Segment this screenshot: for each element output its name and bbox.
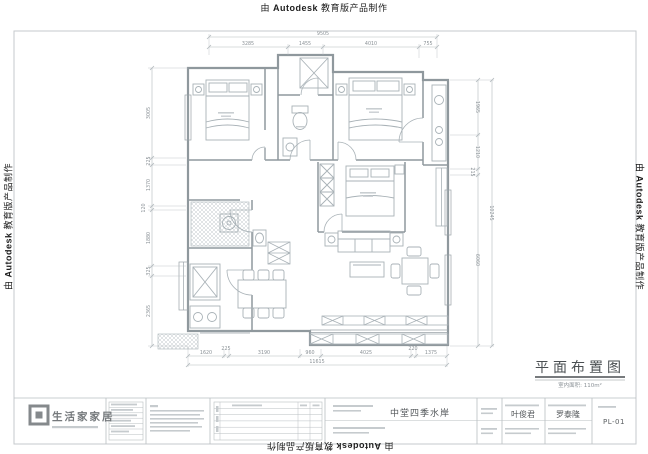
drawing-sheet: 由 Autodesk 教育版产品制作 由 Autodesk 教育版产品制作 由 … — [0, 0, 648, 454]
svg-text:2365: 2365 — [146, 305, 152, 317]
title-block-text: 中堂四季水岸 叶俊君 罗泰隆 PL-01 — [390, 407, 625, 426]
svg-text:3285: 3285 — [242, 41, 254, 47]
watermark-top: 由 Autodesk 教育版产品制作 — [249, 1, 399, 14]
svg-text:4010: 4010 — [365, 41, 377, 47]
plan-title-block: 平面布置图 室内面积: 110m² — [535, 360, 625, 389]
designer-name: 叶俊君 — [511, 409, 535, 419]
svg-text:215: 215 — [469, 167, 475, 176]
plan-inner-walls — [188, 68, 448, 331]
svg-text:1880: 1880 — [146, 232, 152, 244]
svg-text:1210: 1210 — [474, 146, 480, 158]
company-logo: 生活家家居 — [30, 406, 115, 424]
svg-text:1375: 1375 — [425, 350, 437, 356]
svg-text:120: 120 — [141, 203, 147, 212]
plan-subtitle: 室内面积: 110m² — [558, 381, 602, 389]
floor-plan-drawing: 9505 3285 1455 4010 755 1620 225 3190 96… — [0, 0, 648, 454]
watermark-prefix: 由 — [260, 3, 270, 13]
svg-text:1620: 1620 — [200, 350, 212, 356]
svg-text:3005: 3005 — [146, 107, 152, 119]
svg-text:225: 225 — [221, 346, 230, 352]
watermark-suffix: 教育版产品制作 — [321, 3, 388, 13]
plan-room-labels — [218, 108, 382, 197]
svg-text:325: 325 — [146, 266, 152, 275]
svg-text:220: 220 — [408, 346, 417, 352]
watermark-bottom: 由 Autodesk 教育版产品制作 — [255, 440, 405, 453]
project-name: 中堂四季水岸 — [390, 407, 450, 418]
svg-text:4025: 4025 — [360, 350, 372, 356]
svg-text:6060: 6060 — [474, 254, 480, 266]
svg-text:960: 960 — [305, 350, 314, 356]
watermark-right: 由 Autodesk 教育版产品制作 — [634, 152, 647, 302]
watermark-left: 由 Autodesk 教育版产品制作 — [2, 152, 15, 302]
dim-bottom-total: 11615 — [309, 359, 324, 365]
svg-text:3190: 3190 — [258, 350, 270, 356]
watermark-brand: Autodesk — [273, 3, 318, 13]
company-name: 生活家家居 — [52, 410, 115, 423]
plan-title: 平面布置图 — [535, 360, 625, 376]
sheet-number: PL-01 — [603, 418, 625, 426]
svg-text:1455: 1455 — [299, 41, 311, 47]
dim-right-total: 10245 — [488, 205, 494, 220]
svg-text:1965: 1965 — [474, 101, 480, 113]
dim-top-total: 9505 — [317, 31, 329, 37]
svg-text:1370: 1370 — [146, 179, 152, 191]
reviewer-name: 罗泰隆 — [556, 409, 580, 419]
plan-cabinet-strips — [268, 168, 448, 344]
svg-text:755: 755 — [423, 41, 432, 47]
svg-text:225: 225 — [146, 156, 152, 165]
